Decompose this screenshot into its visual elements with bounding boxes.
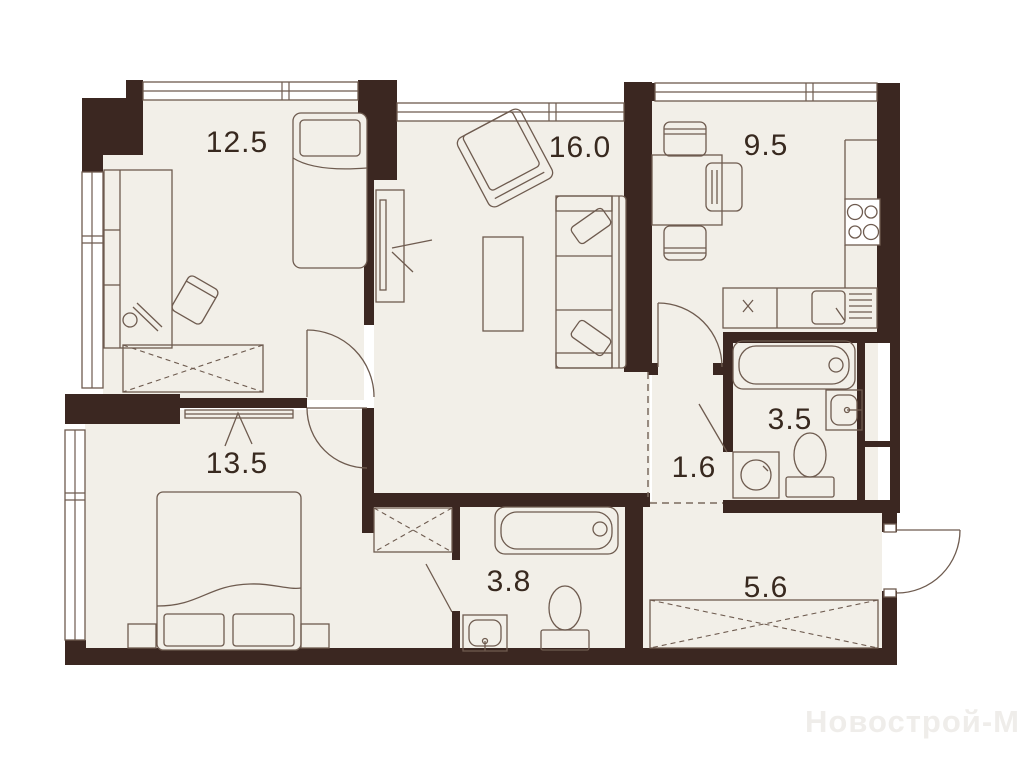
room-label-hallway: 5.6 [744, 571, 789, 605]
window-bedroom1-top [143, 82, 358, 100]
window-bedroom1-left [82, 172, 103, 388]
floor-plan: 12.5 16.0 9.5 13.5 1.6 3.5 3.8 5.6 Новос… [0, 0, 1024, 768]
window-kitchen-top [655, 83, 877, 101]
sofa [556, 196, 626, 368]
door-entrance [884, 524, 960, 597]
window-bedroom2-left [65, 430, 85, 640]
room-label-kitchen: 9.5 [744, 129, 789, 163]
room-label-bedroom1: 12.5 [206, 126, 268, 160]
double-bed [157, 492, 301, 650]
floor-plan-drawing [0, 0, 1024, 768]
room-label-living: 16.0 [549, 131, 611, 165]
watermark: Новострой-М [786, 704, 1020, 740]
room-label-hall: 1.6 [672, 451, 717, 485]
room-label-bedroom2: 13.5 [206, 447, 268, 481]
room-label-bathroom2: 3.8 [487, 565, 532, 599]
room-label-bathroom1: 3.5 [768, 403, 813, 437]
single-bed [293, 113, 367, 268]
stove-hob [845, 199, 880, 245]
